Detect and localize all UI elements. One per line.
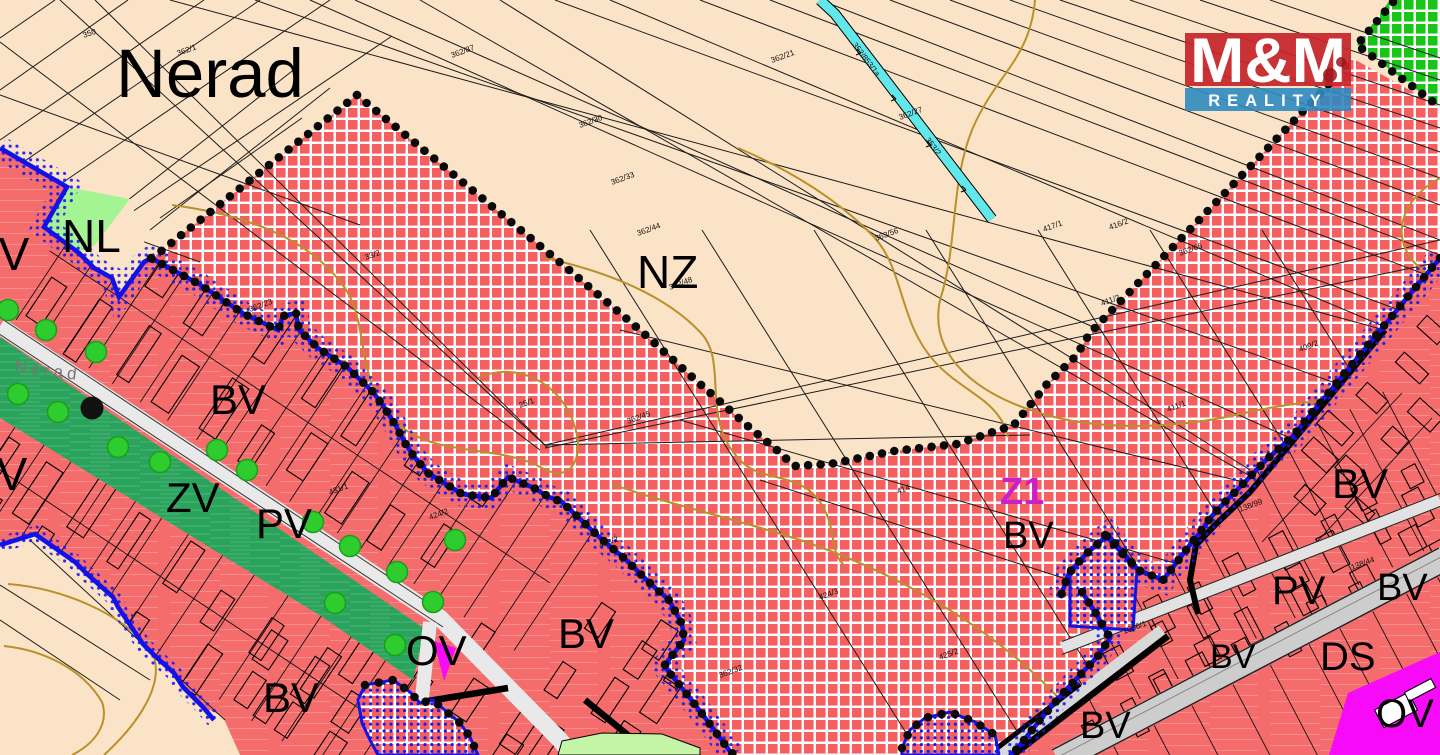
svg-text:PV: PV [256,500,312,547]
svg-text:OV: OV [406,627,467,674]
svg-text:BV: BV [0,448,28,500]
svg-text:BV: BV [1003,515,1054,557]
svg-text:Z1: Z1 [1000,471,1044,513]
svg-text:BV: BV [1080,705,1131,747]
svg-text:Nerad: Nerad [116,35,304,112]
svg-text:BV: BV [0,228,30,280]
svg-text:BV: BV [558,610,614,657]
svg-text:M&M: M&M [1190,26,1346,96]
svg-text:BV: BV [1210,638,1256,676]
svg-text:REALITY: REALITY [1208,92,1328,110]
svg-text:NZ: NZ [637,246,698,298]
svg-text:DS: DS [1320,635,1376,679]
svg-text:BV: BV [1332,460,1388,507]
svg-text:NL: NL [62,210,121,262]
svg-text:BV: BV [263,674,319,721]
svg-text:BV: BV [1377,567,1428,609]
svg-text:PV: PV [1272,569,1326,613]
svg-text:ZV: ZV [166,474,220,521]
svg-text:BV: BV [210,376,266,423]
svg-text:OV: OV [1376,692,1434,736]
